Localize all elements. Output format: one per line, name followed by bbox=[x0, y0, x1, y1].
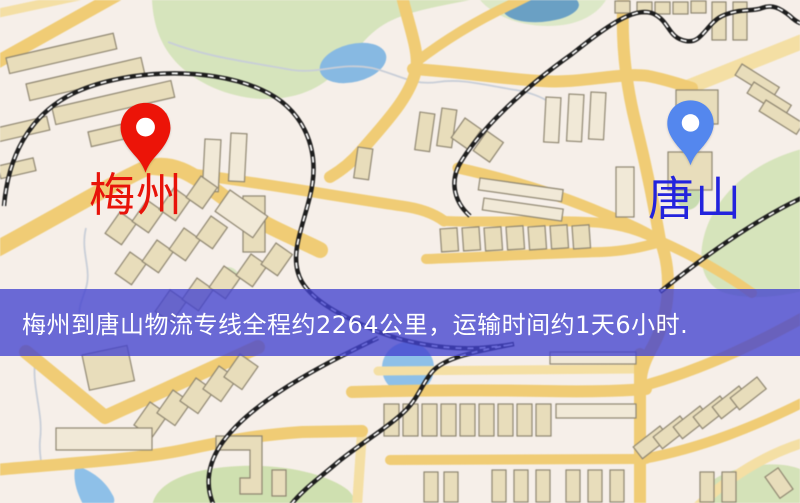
map-canvas[interactable]: 梅州 唐山 梅州到唐山物流专线全程约2264公里，运输时间约1天6小时. bbox=[0, 0, 800, 503]
banner-text: 梅州到唐山物流专线全程约2264公里，运输时间约1天6小时. bbox=[0, 289, 800, 356]
tangshan-pin-icon[interactable] bbox=[664, 99, 717, 168]
tangshan-label: 唐山 bbox=[632, 176, 758, 222]
meizhou-label: 梅州 bbox=[73, 172, 199, 218]
meizhou-pin-icon[interactable] bbox=[117, 101, 174, 176]
pin-body bbox=[121, 103, 171, 173]
pin-body bbox=[667, 100, 713, 165]
pin-hole bbox=[682, 114, 699, 131]
pin-hole bbox=[136, 118, 155, 137]
route-info-banner: 梅州到唐山物流专线全程约2264公里，运输时间约1天6小时. bbox=[0, 289, 800, 356]
map-graphic bbox=[0, 0, 800, 503]
